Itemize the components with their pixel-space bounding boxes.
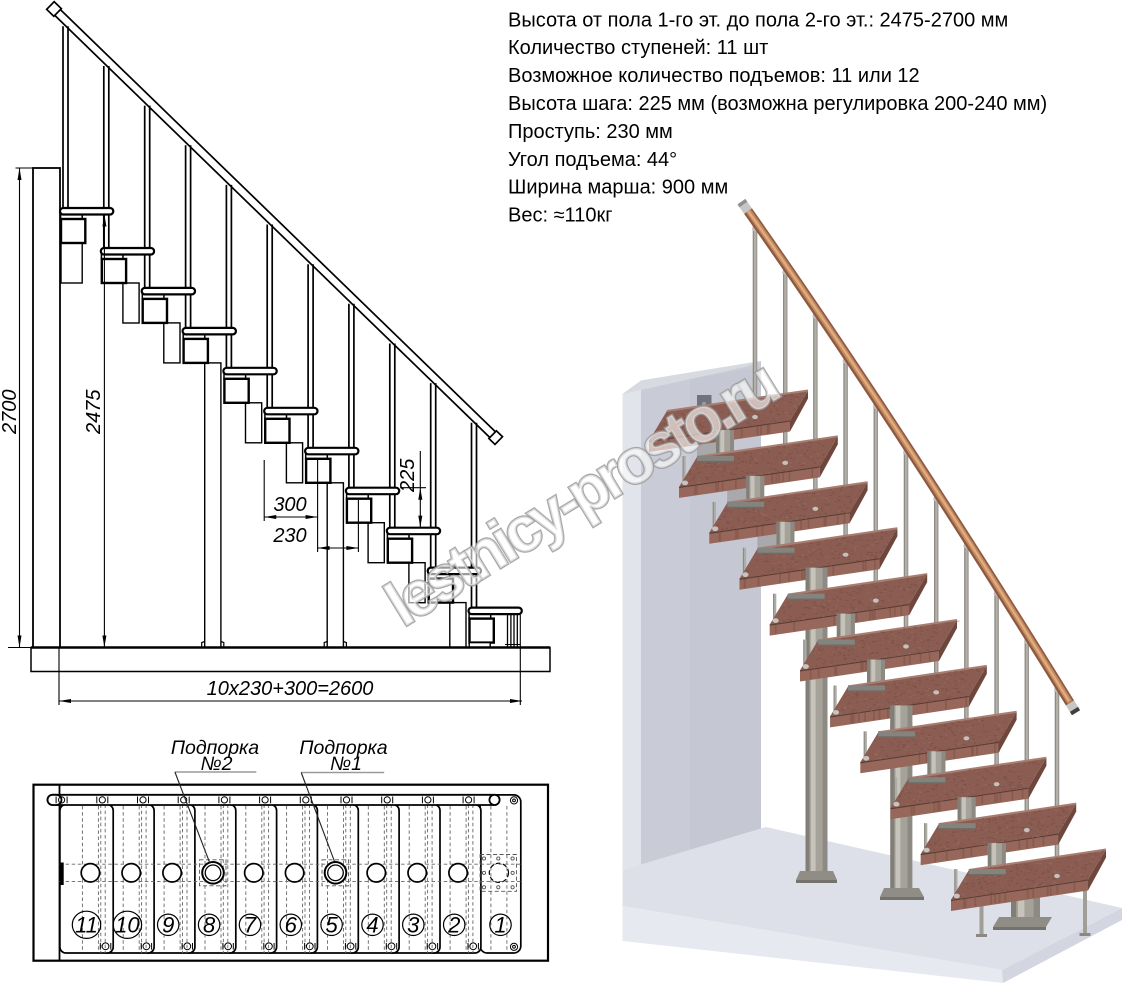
svg-text:Высота от пола 1-го эт. до пол: Высота от пола 1-го эт. до пола 2-го эт.… — [508, 9, 1008, 31]
svg-text:Высота шага: 225 мм (возможна: Высота шага: 225 мм (возможна регулировк… — [508, 93, 1047, 115]
svg-text:2700: 2700 — [0, 390, 21, 436]
svg-text:6: 6 — [285, 912, 298, 937]
svg-text:Вес: ≈110кг: Вес: ≈110кг — [508, 205, 612, 227]
svg-text:225: 225 — [397, 458, 419, 493]
svg-text:10: 10 — [115, 912, 140, 937]
svg-text:2475: 2475 — [83, 389, 105, 435]
svg-text:10x230+300=2600: 10x230+300=2600 — [207, 678, 374, 700]
svg-text:4: 4 — [366, 912, 378, 937]
svg-text:Возможное количество подъемов:: Возможное количество подъемов: 11 или 12 — [508, 65, 920, 87]
svg-text:7: 7 — [244, 912, 257, 937]
svg-text:9: 9 — [162, 912, 174, 937]
svg-text:230: 230 — [272, 525, 306, 547]
svg-text:8: 8 — [203, 912, 216, 937]
svg-text:5: 5 — [325, 912, 338, 937]
svg-text:3: 3 — [407, 912, 420, 937]
svg-text:Количество ступеней: 11 шт: Количество ступеней: 11 шт — [508, 37, 768, 59]
svg-text:11: 11 — [75, 912, 98, 937]
svg-text:300: 300 — [273, 494, 306, 516]
svg-text:2: 2 — [447, 912, 460, 937]
svg-text:Ширина марша: 900 мм: Ширина марша: 900 мм — [508, 177, 728, 199]
svg-text:1: 1 — [494, 912, 506, 937]
svg-text:Проступь: 230 мм: Проступь: 230 мм — [508, 121, 673, 143]
svg-text:Угол подъема: 44°: Угол подъема: 44° — [508, 149, 677, 171]
